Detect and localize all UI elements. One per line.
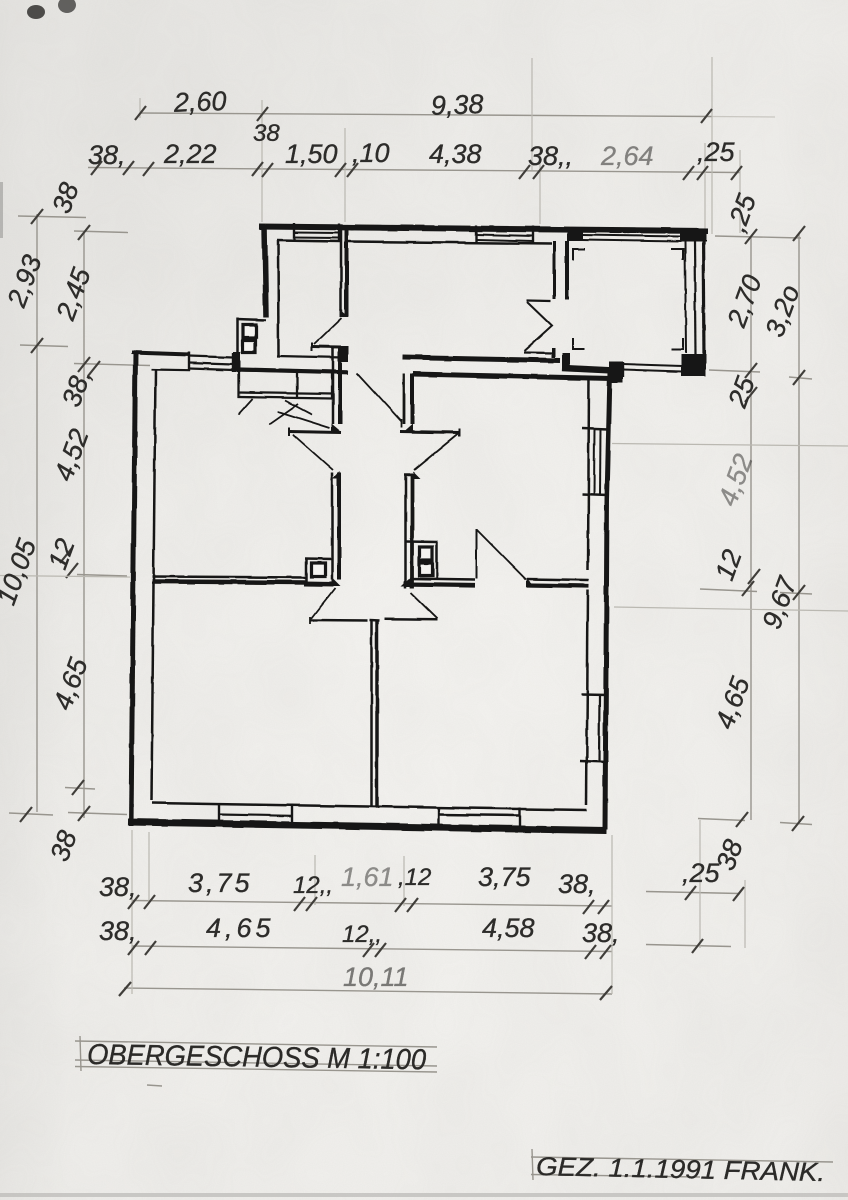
svg-text:2,22: 2,22 [163, 139, 217, 169]
svg-text:38,: 38, [99, 872, 137, 902]
svg-text:38: 38 [253, 120, 280, 147]
svg-text:,10: ,10 [352, 138, 390, 168]
svg-text:3,75: 3,75 [188, 868, 253, 898]
svg-text:OBERGESCHOSS M 1:100: OBERGESCHOSS M 1:100 [87, 1039, 426, 1076]
svg-text:38,,: 38,, [528, 141, 573, 171]
svg-text:,12: ,12 [398, 864, 431, 891]
svg-text:38,: 38, [582, 918, 620, 948]
svg-text:1,50: 1,50 [285, 139, 338, 169]
svg-text:4,58: 4,58 [482, 913, 535, 943]
svg-text:4,38: 4,38 [429, 139, 482, 169]
svg-text:38,: 38, [558, 869, 596, 899]
svg-text:2,60: 2,60 [172, 86, 227, 118]
svg-text:38,: 38, [88, 140, 126, 170]
svg-text:38,: 38, [99, 916, 137, 946]
svg-text:9,38: 9,38 [430, 89, 484, 121]
svg-text:12,,: 12,, [293, 872, 333, 899]
svg-text:,25: ,25 [697, 137, 736, 167]
svg-text:2,64: 2,64 [600, 141, 654, 171]
svg-text:10,11: 10,11 [343, 962, 409, 992]
svg-text:12,,: 12,, [342, 921, 382, 948]
svg-text:4,65: 4,65 [206, 913, 275, 943]
svg-text:1,61: 1,61 [341, 862, 394, 892]
svg-text:,25: ,25 [682, 858, 721, 888]
svg-text:GEZ. 1.1.1991 FRANK.: GEZ. 1.1.1991 FRANK. [536, 1151, 826, 1187]
svg-text:3,75: 3,75 [478, 862, 532, 892]
